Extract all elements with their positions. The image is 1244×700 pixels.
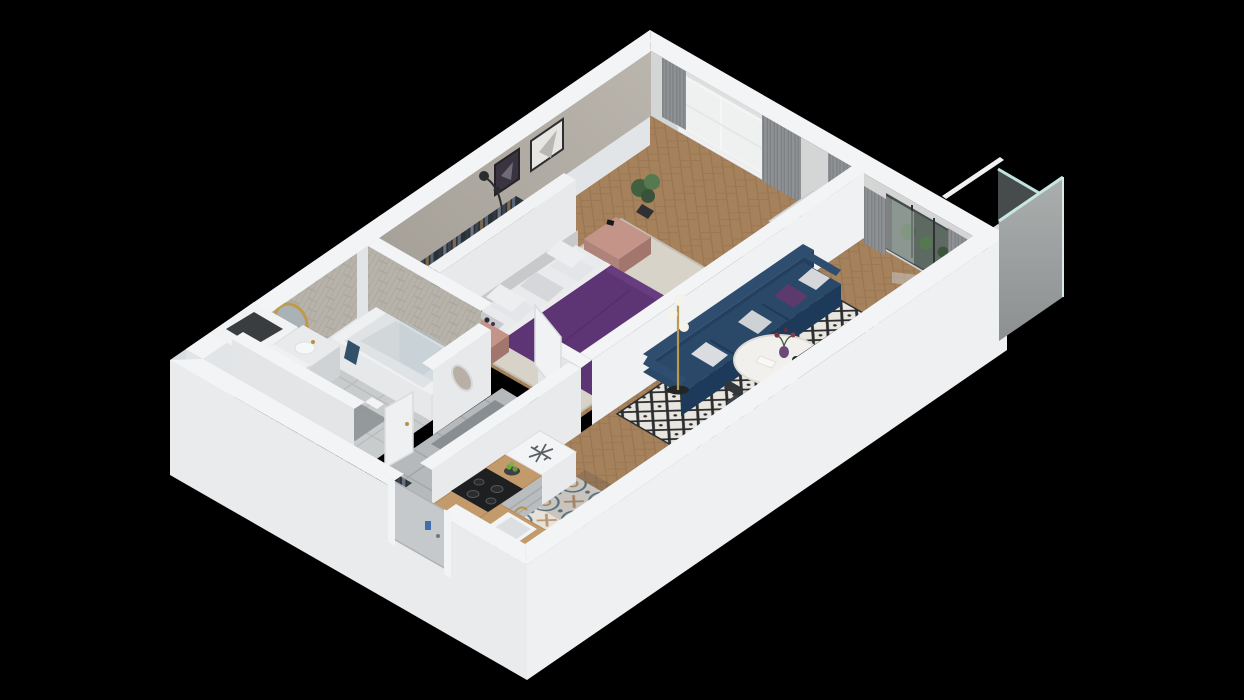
fruit-bowl	[504, 467, 520, 476]
green-apple	[512, 466, 517, 471]
flower	[791, 333, 796, 338]
plant-foliage	[641, 189, 655, 203]
plant-through-glass	[920, 237, 933, 250]
door-handle-gold	[405, 422, 409, 426]
door-frame-post	[444, 509, 451, 578]
burner	[467, 491, 479, 498]
purple-vase	[779, 346, 789, 358]
lamp-shade	[479, 171, 489, 181]
lamp-globe	[679, 322, 689, 332]
burner	[486, 498, 496, 504]
door-frame-post	[388, 477, 395, 546]
door-sign	[425, 521, 431, 530]
vase	[491, 322, 495, 326]
burner	[474, 479, 484, 485]
door-handle	[436, 534, 440, 538]
flower	[784, 328, 788, 332]
lamp-shade	[494, 187, 501, 194]
render-canvas	[0, 0, 1244, 700]
apartment-floor-plan-3d	[0, 0, 1244, 700]
sink-basin	[295, 342, 315, 354]
burner	[491, 486, 503, 493]
lamp-globe	[674, 294, 686, 306]
gold-tap	[311, 340, 315, 344]
plant-foliage	[644, 174, 660, 190]
green-apple	[510, 462, 515, 467]
vase	[484, 317, 489, 322]
lamp-globe	[667, 309, 678, 320]
flower	[774, 332, 779, 337]
